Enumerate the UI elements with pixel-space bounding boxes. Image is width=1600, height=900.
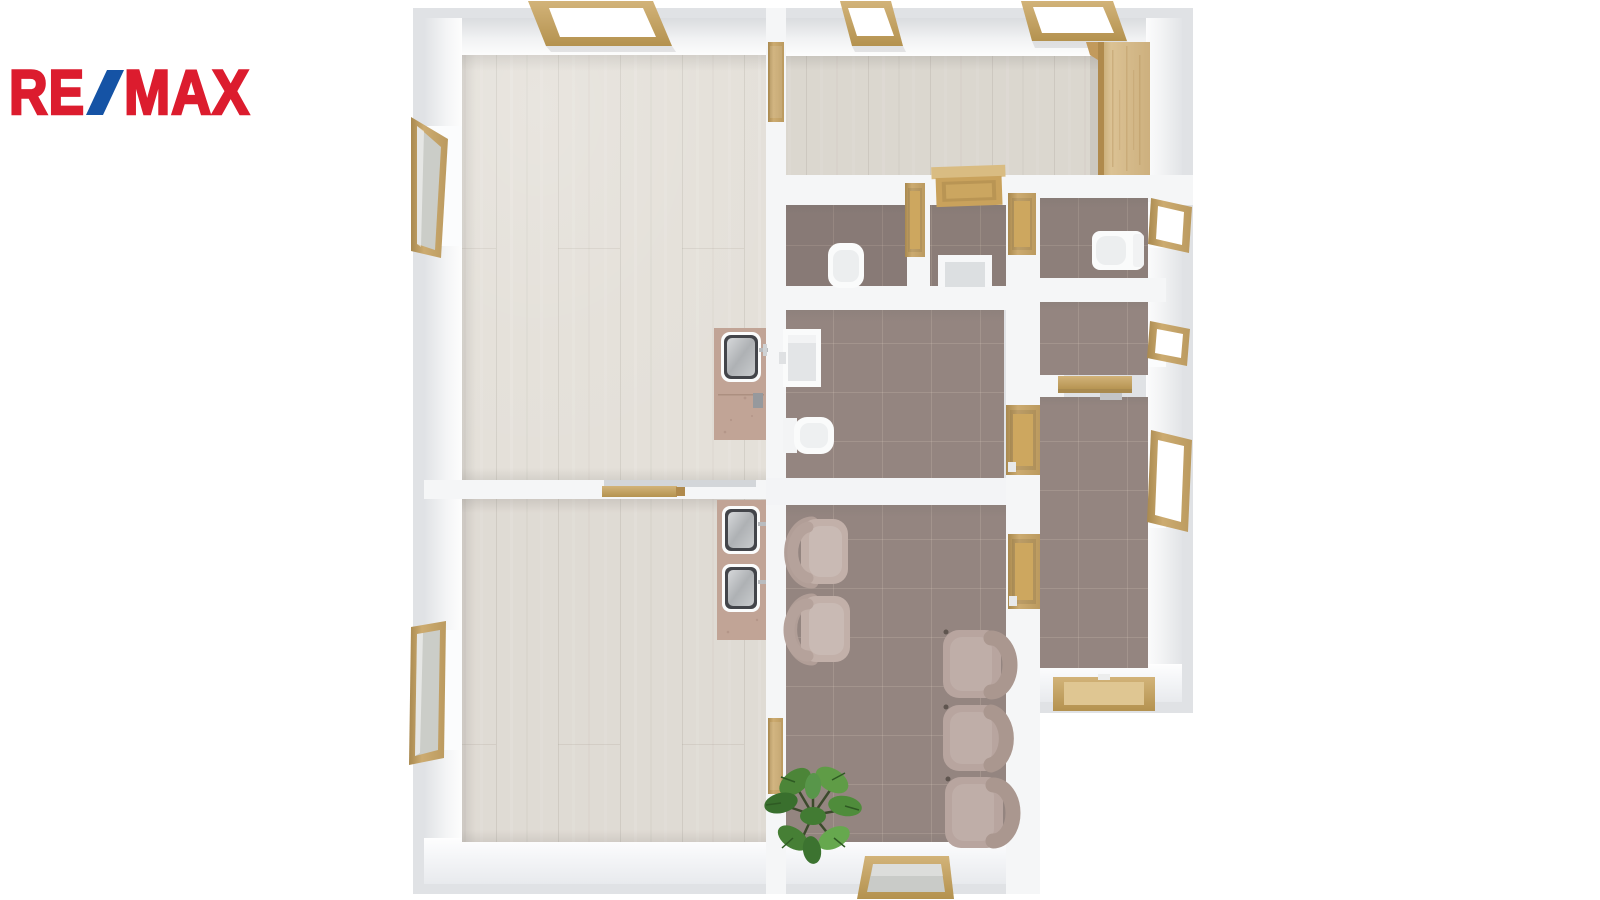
svg-text:RE: RE	[9, 58, 85, 128]
svg-text:MAX: MAX	[124, 58, 250, 128]
